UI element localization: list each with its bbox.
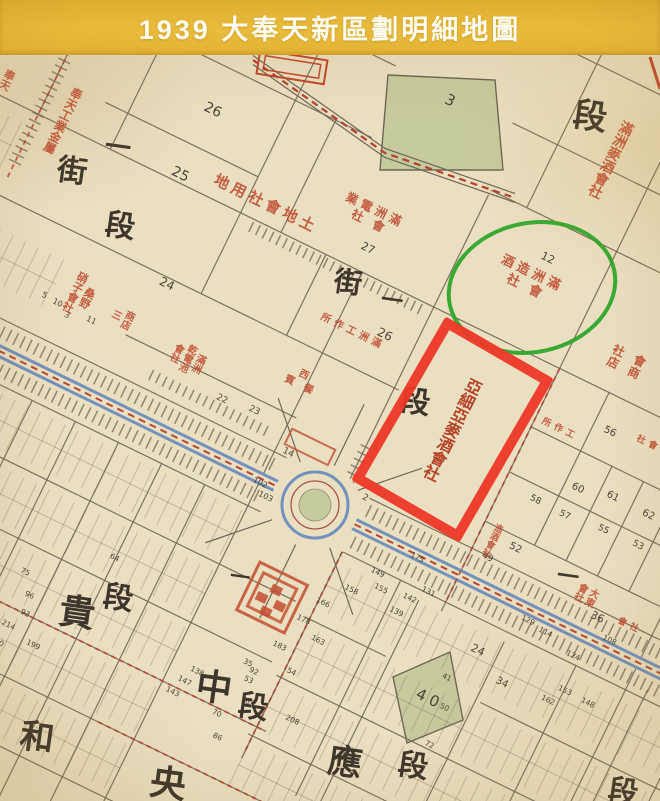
district-kanji-layer: 街一段街一段段一貴段和一中段央應段段 <box>0 55 660 801</box>
district-kanji: 央 <box>148 764 189 801</box>
district-kanji: 段 <box>396 750 430 784</box>
district-kanji: 段 <box>236 691 270 725</box>
district-kanji: 貴 <box>57 593 98 634</box>
screenshot-root: 1939 大奉天新區劃明細地圖 <box>0 0 660 801</box>
district-kanji: 一 <box>380 289 405 314</box>
district-kanji: 一 <box>103 132 132 161</box>
district-kanji: 段 <box>606 776 640 801</box>
district-kanji: 街 <box>332 267 364 299</box>
map-title-banner: 1939 大奉天新區劃明細地圖 <box>0 0 660 55</box>
district-kanji: 一 <box>556 565 581 590</box>
district-kanji: 應 <box>326 744 364 782</box>
page-title: 1939 大奉天新區劃明細地圖 <box>139 8 522 47</box>
district-kanji: 一 <box>229 567 252 590</box>
district-kanji: 和 <box>18 719 56 757</box>
district-kanji: 街 <box>55 155 89 189</box>
district-kanji: 段 <box>571 98 609 136</box>
district-kanji: 中 <box>194 668 235 709</box>
district-kanji: 段 <box>101 582 135 616</box>
district-kanji: 段 <box>103 210 137 244</box>
map-canvas: 262532712262422231421021035103114 024363… <box>0 55 660 801</box>
